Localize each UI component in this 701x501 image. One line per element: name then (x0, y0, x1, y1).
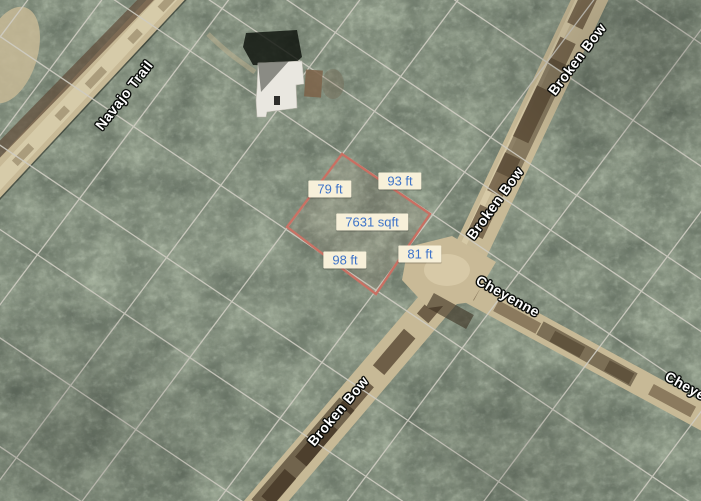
parcel-side-label-se: 81 ft (398, 246, 441, 263)
bare-ground (322, 69, 344, 99)
terrain-layer (0, 0, 701, 501)
parcel-side-label-nw: 79 ft (308, 181, 351, 198)
house-shed (304, 69, 323, 97)
parcel-area-label: 7631 sqft (336, 214, 408, 231)
house-detail (274, 96, 280, 105)
parcel-side-label-sw: 98 ft (323, 252, 366, 269)
satellite-map[interactable]: Navajo Trail Broken Bow Broken Bow Broke… (0, 0, 701, 501)
parcel-side-label-ne: 93 ft (378, 173, 421, 190)
